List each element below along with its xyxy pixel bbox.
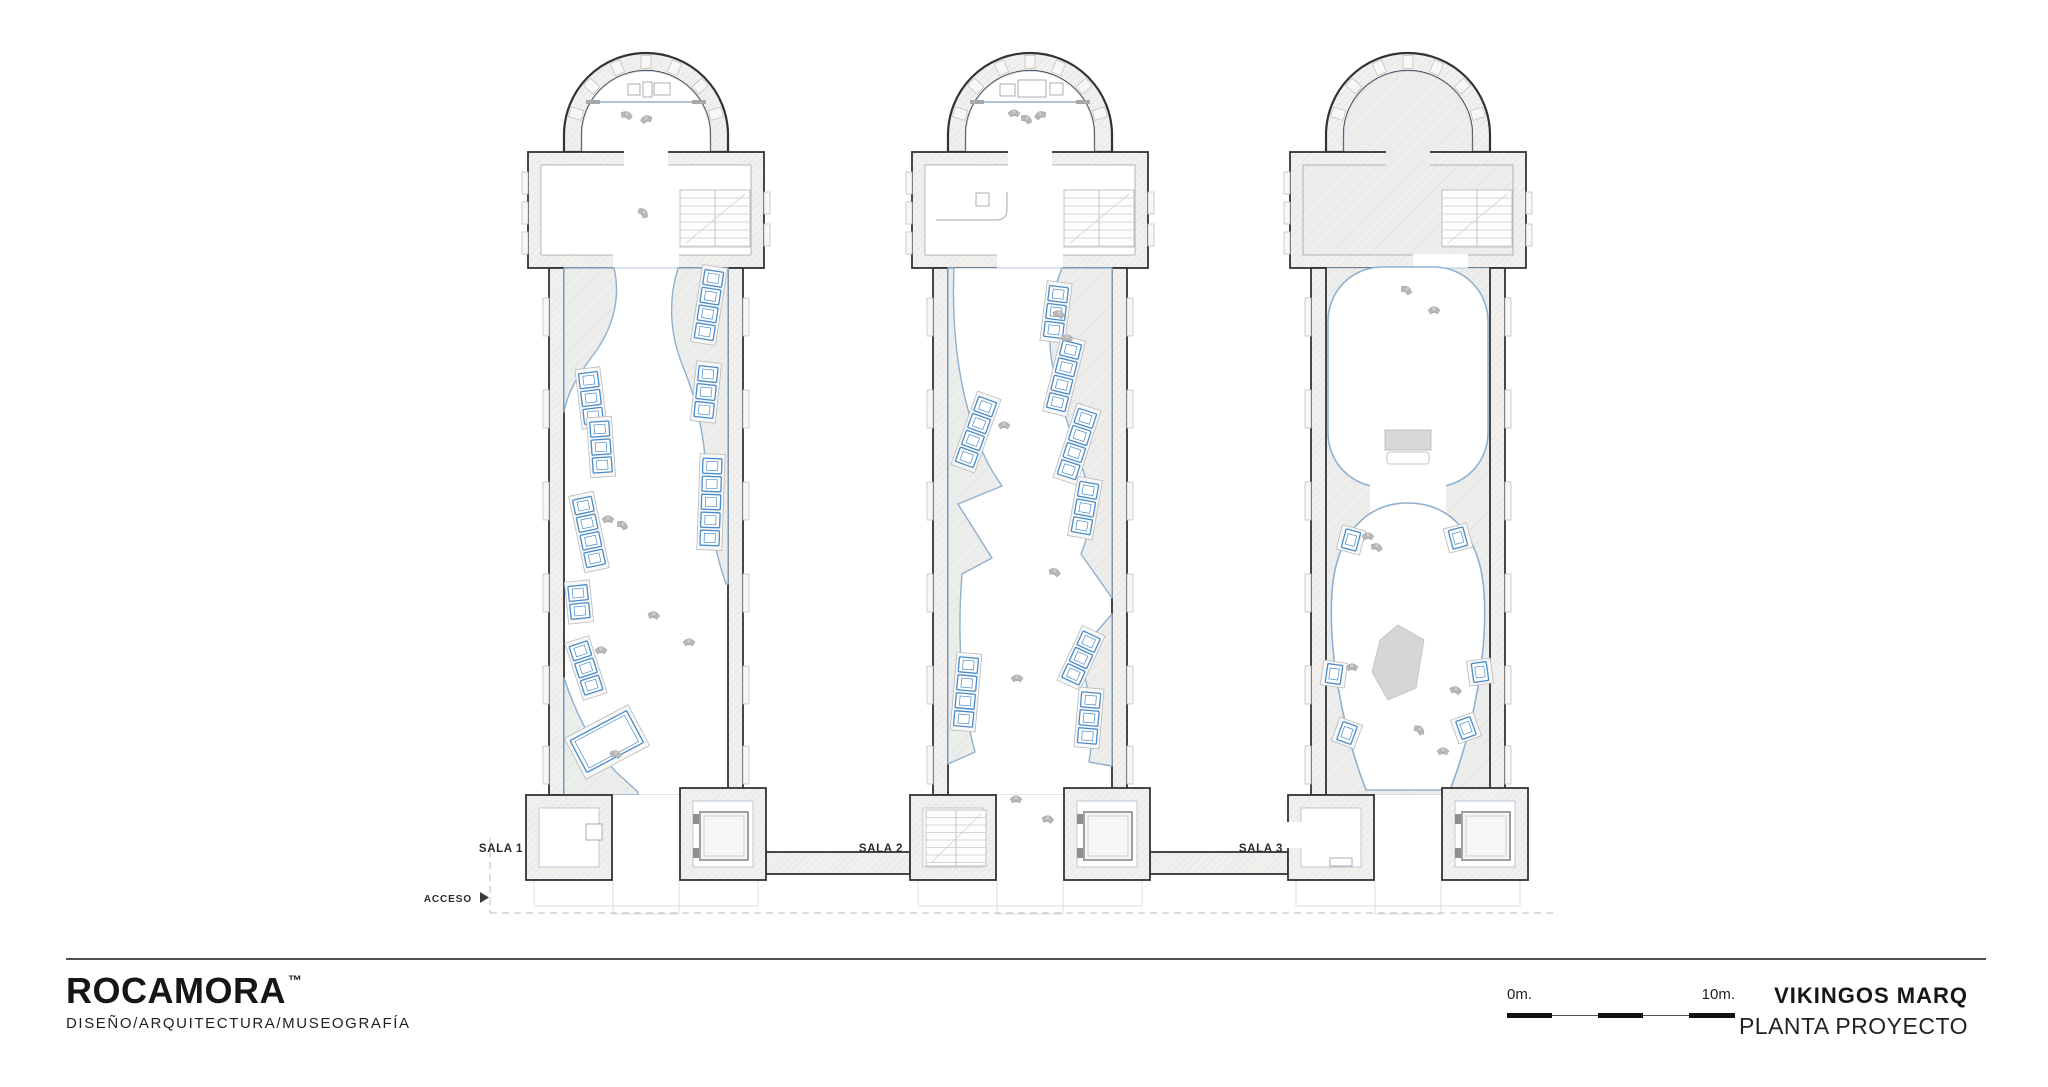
entrance-rooms: [526, 788, 766, 881]
display-case-cluster: [697, 454, 725, 551]
entrance-rooms: [1286, 788, 1528, 881]
brand-logo: ROCAMORA™: [66, 972, 411, 1010]
scale-bar: 0m. 10m.: [1507, 986, 1735, 1028]
room-label-sala-2: SALA 2: [859, 843, 903, 855]
floor-plan-sala-2: [906, 53, 1154, 914]
plan-sheet: SALA 1 SALA 2 SALA 3 ACCESO ROCAMORA™ DI…: [0, 0, 2048, 1087]
staircase: [1442, 190, 1512, 247]
bench-outline: [1387, 452, 1429, 464]
display-case-cluster: [1320, 660, 1347, 688]
footer-divider: [66, 958, 1986, 960]
staircase: [1064, 190, 1134, 247]
display-case-cluster: [1074, 687, 1104, 749]
staircase: [680, 190, 750, 247]
apse: [1326, 53, 1490, 153]
staircase: [926, 810, 986, 866]
scale-bar-segment: [1689, 1013, 1735, 1018]
room-label-sala-1: SALA 1: [479, 843, 523, 855]
scale-start-label: 0m.: [1507, 986, 1532, 1003]
floor-plan-sala-3: [1284, 53, 1532, 914]
elevator: [1077, 812, 1132, 860]
scale-bar-graphic: [1507, 1013, 1735, 1018]
brand-tagline: DISEÑO/ARQUITECTURA/MUSEOGRAFÍA: [66, 1015, 411, 1032]
sheet-title: PLANTA PROYECTO: [1739, 1013, 1968, 1040]
display-case-cluster: [586, 416, 615, 478]
room-label-sala-3: SALA 3: [1239, 843, 1283, 855]
brand-name: ROCAMORA: [66, 970, 286, 1011]
access-arrow-icon: [480, 892, 489, 903]
bench: [1385, 430, 1431, 450]
elevator: [693, 812, 748, 860]
access-label: ACCESO: [424, 894, 472, 905]
scale-bar-segment: [1507, 1013, 1552, 1018]
entrance-rooms: [910, 788, 1150, 881]
project-title: VIKINGOS MARQ: [1739, 983, 1968, 1009]
display-case-cluster: [564, 580, 593, 624]
title-block: VIKINGOS MARQ PLANTA PROYECTO: [1739, 983, 1968, 1040]
floor-plan-sala-1: [522, 53, 770, 914]
scale-bar-segment: [1598, 1013, 1643, 1018]
brand-block: ROCAMORA™ DISEÑO/ARQUITECTURA/MUSEOGRAFÍ…: [66, 972, 411, 1032]
display-case-cluster: [1466, 658, 1493, 686]
scale-end-label: 10m.: [1702, 986, 1735, 1003]
floor-plan-drawing: SALA 1 SALA 2 SALA 3 ACCESO: [0, 0, 2048, 1087]
elevator: [1455, 812, 1510, 860]
trademark-symbol: ™: [288, 972, 303, 988]
